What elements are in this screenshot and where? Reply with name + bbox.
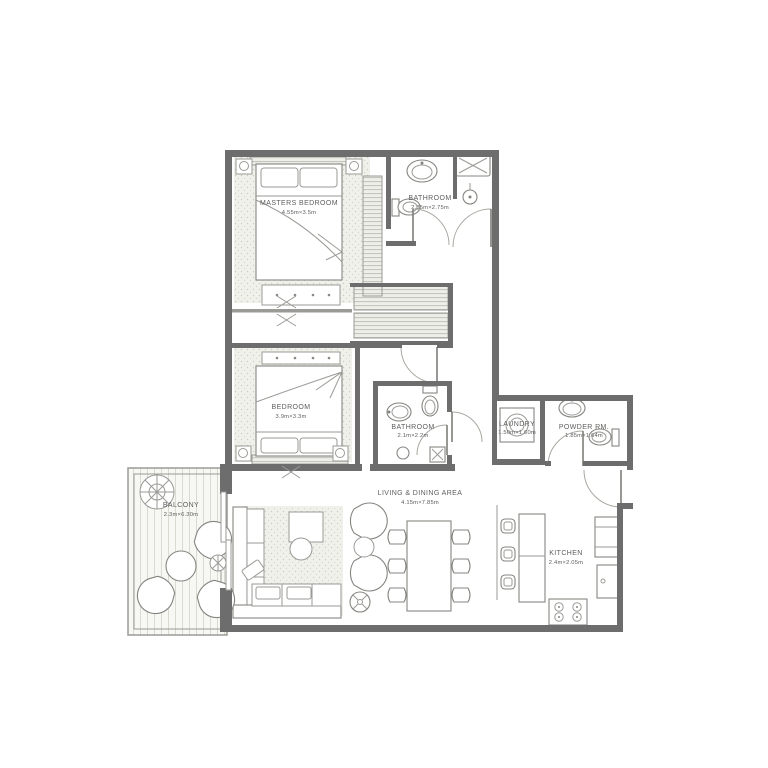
balcony-label: BALCONY xyxy=(163,502,199,509)
pillow xyxy=(300,168,337,187)
sink-icon xyxy=(407,160,437,182)
sink-icon xyxy=(559,399,585,418)
lamp-icon xyxy=(336,449,345,458)
sliding-door-panel xyxy=(226,540,231,590)
wardrobe xyxy=(354,313,448,338)
lamp-icon xyxy=(240,162,249,171)
toilet-icon xyxy=(422,386,438,416)
bathroom1-label: BATHROOM xyxy=(408,195,451,202)
dining-chair-icon xyxy=(452,530,470,544)
pillow xyxy=(300,438,337,453)
bathroom1-dims: 2.35m×2.75m xyxy=(411,205,449,211)
pillow xyxy=(256,587,280,599)
sink-icon xyxy=(387,403,411,421)
floor-lamp-icon xyxy=(350,592,370,612)
refrigerator-icon xyxy=(595,517,618,557)
master-wardrobe xyxy=(363,176,382,296)
floor-plan-page: MASTERS BEDROOM 4.55m×3.5m BATHROOM 2.35… xyxy=(0,0,768,768)
dining-table-icon xyxy=(407,521,451,611)
floor-plan-drawing: MASTERS BEDROOM 4.55m×3.5m BATHROOM 2.35… xyxy=(0,0,768,768)
kitchen-label: KITCHEN xyxy=(549,550,583,557)
double-bed-icon xyxy=(256,366,342,456)
pillow xyxy=(261,168,298,187)
living-dining-dims: 4.15m×7.85m xyxy=(401,500,439,506)
dining-chair-icon xyxy=(388,530,406,544)
bed-bench xyxy=(262,352,340,364)
powder-room-label: POWDER RM. xyxy=(559,424,609,431)
hand-sink-icon xyxy=(397,447,409,459)
shower-icon xyxy=(456,155,490,204)
counter-unit xyxy=(597,565,618,598)
sliding-door-panel xyxy=(221,492,226,542)
door-swing-arc xyxy=(453,209,491,247)
bar-stool-icon xyxy=(501,547,515,561)
lamp-icon xyxy=(239,449,248,458)
dining-chair-icon xyxy=(452,559,470,573)
small-plant-icon xyxy=(210,555,226,571)
laundry-label: LAUNDRY xyxy=(499,421,535,428)
dining-chair-icon xyxy=(388,559,406,573)
double-bed-icon xyxy=(256,164,342,280)
kitchen-dims: 2.4m×2.05m xyxy=(549,560,583,566)
door-swing-arc xyxy=(401,347,437,383)
side-table-icon xyxy=(290,538,312,560)
bedroom-label: BEDROOM xyxy=(272,404,311,411)
armchair-icon xyxy=(350,503,387,539)
round-table-icon xyxy=(166,551,196,581)
dining-chair-icon xyxy=(388,588,406,602)
kitchen-island xyxy=(519,514,545,602)
bathroom2-dims: 2.1m×2.2m xyxy=(398,433,429,439)
round-side-table-icon xyxy=(354,537,374,557)
stove-icon xyxy=(549,599,587,625)
bar-stool-icon xyxy=(501,519,515,533)
door-swing-arc xyxy=(452,412,482,442)
armchair-icon xyxy=(350,555,387,591)
masters-bedroom-dims: 4.55m×3.5m xyxy=(282,210,316,216)
door-swing-arc xyxy=(413,209,449,245)
coffee-table-icon xyxy=(289,512,323,542)
bedroom-dims: 3.9m×3.3m xyxy=(276,414,307,420)
shower-drain-icon xyxy=(430,447,445,462)
living-dining-label: LIVING & DINING AREA xyxy=(378,490,463,497)
balcony-dims: 2.3m×6.30m xyxy=(164,512,198,518)
pillow xyxy=(261,438,298,453)
bathroom2-label: BATHROOM xyxy=(391,424,434,431)
lamp-icon xyxy=(350,162,359,171)
bar-stool-icon xyxy=(501,575,515,589)
pillow xyxy=(287,587,311,599)
entry-door-swing-arc xyxy=(584,470,621,507)
powder-room-dims: 1.85m×1.64m xyxy=(565,433,603,439)
laundry-dims: 1.50m×1.60m xyxy=(498,430,536,436)
bed-bench xyxy=(262,285,340,305)
dining-chair-icon xyxy=(452,588,470,602)
masters-bedroom-label: MASTERS BEDROOM xyxy=(260,200,338,207)
